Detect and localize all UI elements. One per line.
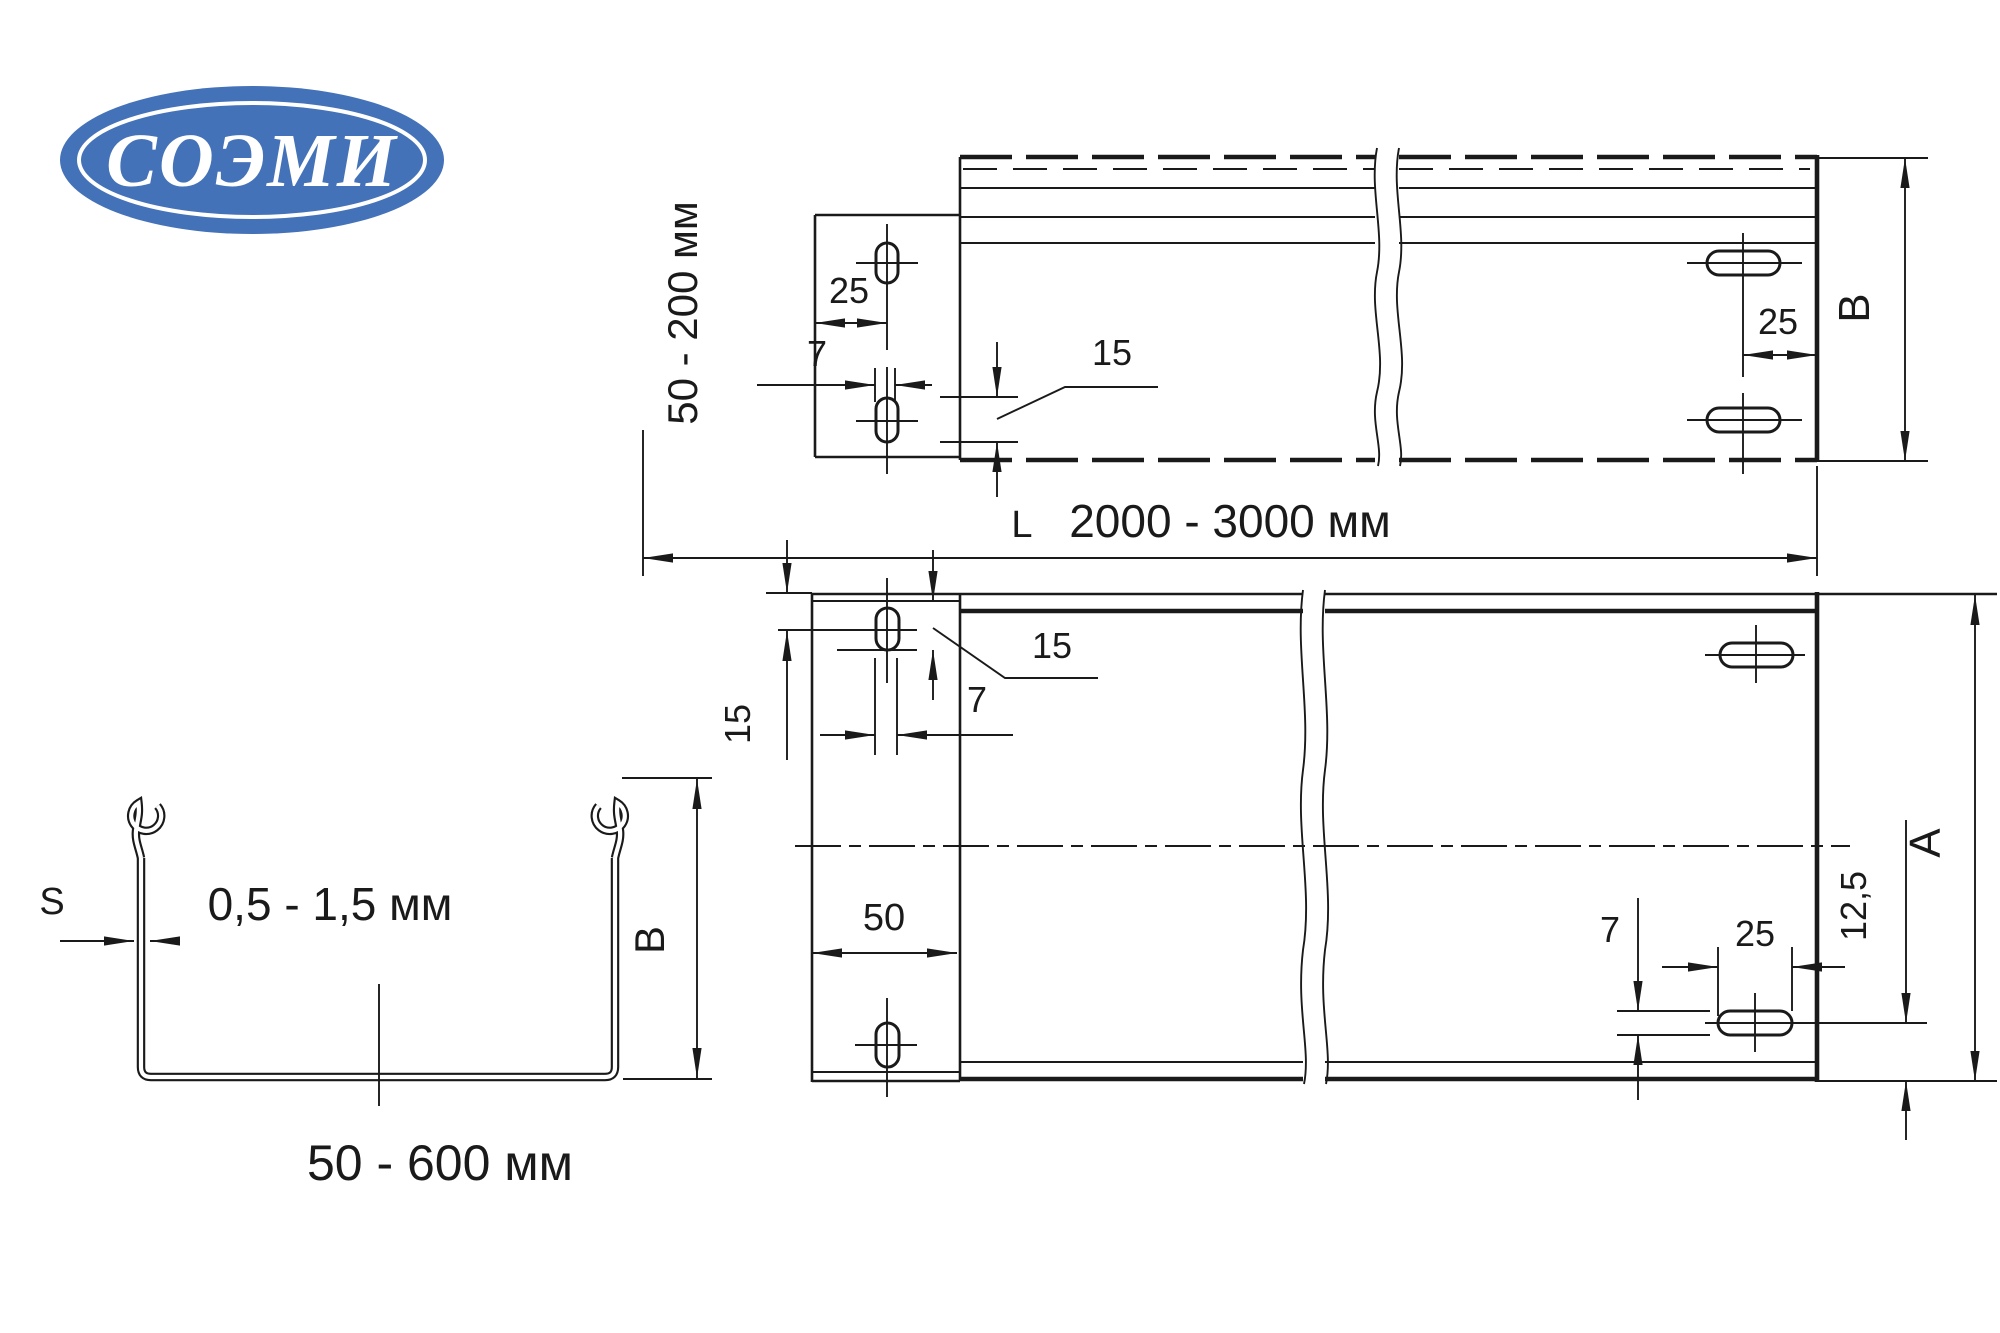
plan-dim-15-left: 15 (717, 704, 758, 744)
side-dim-15-slot: 15 (1092, 332, 1132, 373)
section-dim-B: B (626, 926, 673, 954)
plan-dim-25-bottom: 25 (1735, 913, 1775, 954)
plan-dim-A: A (1901, 828, 1950, 858)
side-dim-7-left: 7 (807, 333, 827, 374)
technical-drawing-page: СОЭМИ (0, 0, 2000, 1333)
length-range: 2000 - 3000 мм (1069, 495, 1391, 547)
break-line (1323, 590, 1328, 1084)
side-dim-25-right: 25 (1758, 301, 1798, 342)
side-view: 25 7 15 25 B 50 - 200 мм (659, 148, 1928, 497)
break-line (1375, 148, 1380, 466)
side-height-range-label: 50 - 200 мм (659, 201, 706, 425)
section-dim-S: S (39, 881, 64, 923)
length-symbol: L (1011, 504, 1032, 546)
section-width-range: 50 - 600 мм (307, 1135, 573, 1191)
break-line (1397, 148, 1402, 466)
logo: СОЭМИ (60, 86, 444, 234)
plan-dim-7-bottom: 7 (1600, 909, 1620, 950)
side-dim-B: B (1830, 293, 1879, 322)
plan-dim-12-5: 12,5 (1833, 871, 1874, 941)
side-dim-25-left: 25 (829, 270, 869, 311)
plan-dim-15-slot: 15 (1032, 625, 1072, 666)
section-thickness-range: 0,5 - 1,5 мм (208, 878, 453, 930)
length-dimension: L 2000 - 3000 мм (643, 430, 1817, 576)
cable-tray-drawing: СОЭМИ (0, 0, 2000, 1333)
logo-text: СОЭМИ (106, 119, 399, 203)
channel-profile (131, 803, 625, 1077)
plan-dim-50: 50 (863, 897, 905, 939)
cross-section-view: S 0,5 - 1,5 мм B 50 - 600 мм (39, 778, 712, 1191)
plan-view: 15 15 7 50 7 25 12,5 A (717, 540, 1997, 1140)
break-line (1301, 590, 1306, 1084)
plan-dim-7-slot: 7 (967, 679, 987, 720)
